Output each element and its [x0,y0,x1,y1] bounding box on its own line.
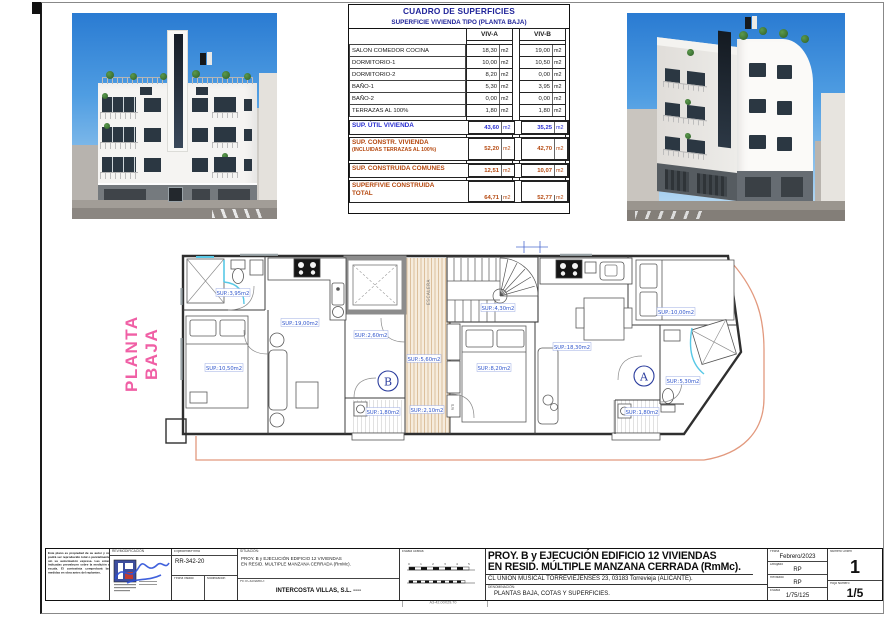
window [192,158,208,172]
room-area-label: SUP.:8,20m2 [478,366,511,372]
numero-orden-value: 1 [828,557,882,578]
room-area-label: SUP.:10,00m2 [658,310,694,316]
room-area-label: SUP.:18,30m2 [554,345,590,351]
unit: m2 [499,69,512,80]
table-subtitle: SUPERFICIE VIVIENDA TIPO (PLANTA BAJA) [349,18,569,28]
kitchen-b [268,258,346,320]
unit-a-letter: A [639,371,649,384]
title-block: Este plano es propiedad de su autor y no… [45,548,883,601]
building-left-face [657,37,737,201]
balcony-rail [100,142,138,149]
window [749,99,766,113]
situacion-label: SITUACIÓN: [240,550,399,553]
escala-row: Escala 1/75/125 [768,588,827,600]
window [144,158,161,172]
unit: m2 [501,195,514,201]
revision-header: REV/MODIFICACIÓN [112,550,172,553]
value-a: 12,51 [469,165,501,176]
storefront [192,189,210,200]
roof-plant [739,31,748,40]
peticionario-value: INTERCOSTA VILLAS, S.L. ---- [238,588,399,594]
expediente-cell: Expediente/Firma RR-342-20 Fecha visado … [172,549,238,600]
paper-format-label: A3-42.00X29.70 [196,601,690,605]
value-b: 10,50 [520,57,552,68]
room-area-label: SUP.:4,30m2 [482,306,515,312]
roof-plant [160,73,167,80]
roof-plant [687,49,694,56]
window-small [244,129,252,141]
value-a: 43,60 [469,122,501,133]
hoja-cell: Hoja Numero 1/5 [828,581,882,600]
escala-label: Escala [770,589,828,592]
window [749,135,766,149]
storefront [781,177,803,197]
room-area-label: SUP.:5,60m2 [408,357,441,363]
project-title-cell: PROY. B y EJECUCIÓN EDIFICIO 12 VIVIENDA… [486,549,768,600]
value-a: 18,30 [467,45,499,56]
unit: m2 [554,139,567,159]
logo-cell: REV/MODIFICACIÓN [110,549,172,600]
disclaimer-fine-print: Este plano es propiedad de su autor y no… [48,552,110,575]
architect-logo [111,557,171,600]
project-address: CL UNION MUSICAL TORREVIEJENSES 23, 0318… [486,575,767,585]
neighbor-wall-right [259,73,277,200]
dibujado-value: RP [768,567,827,573]
tower-glass [174,34,183,148]
svg-text:4: 4 [456,562,458,566]
comunes-summary-row: SUP. CONSTRUIDA COMUNES 12,51m2 10,07m2 [349,163,569,178]
unit: m2 [554,165,567,176]
format-tick [487,601,488,607]
terrace-b-step [352,433,404,440]
svg-text:0: 0 [408,562,410,566]
bathroom-a-fixtures [661,320,736,412]
escala-grafica-label: Escala Gráfica [402,550,486,553]
value-b: 10,07 [522,165,554,176]
balcony-plant [685,133,691,140]
value-b: 42,70 [522,139,554,159]
escala-value: 1/75/125 [768,593,827,599]
elevator [346,258,404,312]
chimney-white [207,52,212,65]
value-a: 8,20 [467,69,499,80]
front-elevation-render [72,13,277,219]
kitchen-a [540,258,632,284]
room-area-label: SUP.:2,60m2 [355,333,388,339]
modificacion-label: Modificación [207,577,238,580]
expediente-number: RR-342-20 [172,556,237,565]
riti-label-vertical: RITI [451,404,455,410]
garage-door [697,173,727,197]
unit: m2 [552,81,565,92]
roof-plant [222,71,230,79]
corner-perspective-render [627,13,845,221]
storefront [745,177,771,197]
value-b: 0,00 [520,93,552,104]
summary-label: SUP. CONSTR. VIVIENDA (INCLUIDAS TERRAZA… [350,138,468,160]
fecha-visado-label: Fecha visado [174,577,206,580]
value-a: 0,00 [467,93,499,104]
window [214,127,236,142]
revisado-value: RP [768,580,827,586]
staircase [447,257,538,322]
neighbor-wall-right2 [815,141,821,201]
balcony-glass [102,127,136,142]
neighbor-wall-right [821,93,845,201]
ground-floor [98,183,257,200]
balcony-glass [102,97,136,112]
window [144,128,161,142]
room-area-label: SUP.:19,00m2 [282,321,318,327]
value-a: 1,80 [467,105,499,116]
unit: m2 [552,45,565,56]
unit: m2 [552,93,565,104]
format-tick [402,601,403,607]
denominacion-label: DENOMINACIÓN: [488,586,766,589]
hoja-value: 1/5 [828,586,882,600]
situacion-text: PROY. B y EJECUCIÓN EDIFICIO 12 VIVIENDA… [241,557,398,568]
roof-plant [759,27,767,35]
window [214,97,236,112]
unit: m2 [499,105,512,116]
expediente-header: Expediente/Firma [174,550,238,553]
denominacion-cell: DENOMINACIÓN: PLANTAS BAJA, COTAS Y SUPE… [486,585,767,600]
hoja-label: Hoja Numero [830,582,882,585]
window [777,65,792,79]
balcony-plant [685,99,691,106]
balcony-rail [100,172,138,179]
unit-b-marker: B [378,371,398,391]
unit-b-letter: B [384,376,392,389]
tower-glass [718,31,731,149]
crosswalk [212,209,267,218]
svg-text:2: 2 [432,562,434,566]
total-summary-row: SUPERFIVIE CONSTRUIDA TOTAL 64,71m2 52,7… [349,180,569,203]
neighbor-wall-left [627,109,659,201]
neighbor-wall-left [72,145,98,200]
drawing-sheet: { "colors": { "pink_accent": "#f05fa5", … [0,0,888,618]
graphic-scale-bar: 012 345 [403,559,483,593]
svg-text:5: 5 [468,562,470,566]
project-title: PROY. B y EJECUCIÓN EDIFICIO 12 VIVIENDA… [486,549,753,575]
unit: m2 [501,165,514,176]
roof-plant [779,29,788,38]
room-area-label: SUP.:1,80m2 [626,410,659,416]
garage-door [665,169,689,192]
stair-label-vertical: ESCALERA [426,279,431,305]
balcony-rail [212,172,238,178]
roof-plant [192,70,200,78]
chimney-dark [745,17,751,29]
building-right-face [737,39,813,201]
window [144,98,161,112]
util-summary-row: SUP. ÚTIL VIVIENDA 43,60m2 35,25m2 [349,120,569,135]
fecha-value: Febrero/2023 [768,554,827,560]
value-a: 5,30 [467,81,499,92]
ground-floor-right [737,171,813,201]
disclaimer-cell: Este plano es propiedad de su autor y no… [46,549,110,600]
value-b: 0,00 [520,69,552,80]
situacion-cell: SITUACIÓN: PROY. B y EJECUCIÓN EDIFICIO … [238,549,400,600]
revisado-row: Revisado RP [768,575,827,588]
value-b: 1,80 [520,105,552,116]
unit: m2 [499,81,512,92]
value-a: 10,00 [467,57,499,68]
expediente-subcells: Fecha visado Modificación [172,575,237,600]
balcony-rail [212,112,238,118]
revisado-label: Revisado [770,576,828,579]
room-area-label: SUP.:5,30m2 [667,379,700,385]
window [749,63,766,77]
value-b: 3,95 [520,81,552,92]
svg-text:1: 1 [420,562,422,566]
unit: m2 [552,57,565,68]
corridor-closets [447,324,460,417]
window [214,157,236,172]
storefront [104,189,146,200]
unit: m2 [554,122,567,133]
unit: m2 [552,105,565,116]
value-a: 52,20 [469,139,501,159]
fecha-row: Fecha Febrero/2023 [768,549,827,562]
balcony-plant [102,93,108,99]
room-area-label: SUP.:1,80m2 [367,410,400,416]
balcony-rail [212,142,238,148]
window-small [244,159,252,171]
svg-text:3: 3 [444,562,446,566]
room-area-label: SUP.:10,50m2 [206,366,242,372]
fecha-label: Fecha [770,550,828,553]
room-area-label: SUP.:3,95m2 [217,291,250,297]
surface-areas-table: CUADRO DE SUPERFICIES SUPERFICIE VIVIEND… [348,4,570,214]
storefront [218,189,250,200]
roof-plant [801,35,809,43]
window [192,98,208,112]
balcony-rail [100,112,138,119]
dimension-marks [516,241,548,253]
stair-tower [167,30,188,152]
chimney-white [752,16,757,29]
order-cell: Numero Orden 1 Hoja Numero 1/5 [828,549,882,600]
chimney-dark [200,53,206,65]
value-b: 35,25 [522,122,554,133]
sheet-corner-mark [32,2,41,14]
unit: m2 [499,45,512,56]
unit: m2 [552,69,565,80]
summary-label: SUPERFIVIE CONSTRUIDA TOTAL [350,181,468,202]
value-b: 52,77 [522,195,554,201]
balcony-plant [104,123,110,129]
denominacion-value: PLANTAS BAJA, COTAS Y SUPERFICIES. [494,591,610,597]
attic-window [140,87,152,95]
peticionario-label: PETICIONARIO: [240,580,399,583]
graphic-scale-cell: Escala Gráfica 012 345 [400,549,486,600]
window-small [244,99,252,111]
numero-orden-cell: Numero Orden 1 [828,549,882,581]
plan-title-vertical: PLANTA BAJA [122,288,152,420]
summary-label: SUP. CONSTRUIDA COMUNES [350,164,468,177]
dibujado-row: Dibujado RP [768,562,827,575]
balcony-glass [102,157,136,172]
unit: m2 [554,195,567,201]
unit-a-marker: A [634,366,654,386]
summary-label: SUP. ÚTIL VIVIENDA [350,121,468,134]
table-title: CUADRO DE SUPERFICIES [349,5,569,18]
dates-cell: Fecha Febrero/2023 Dibujado RP Revisado … [768,549,828,600]
window [777,137,792,151]
attic-window [196,87,208,95]
floor-plan: SUP.:3,95m2 SUP.:19,00m2 SUP.:10,50m2 SU… [160,240,780,550]
window [777,101,792,115]
roof-plant [106,71,114,79]
roof-plant [130,73,137,80]
bathroom-b-fixtures [187,259,263,304]
unit: m2 [499,93,512,104]
unit: m2 [501,122,514,133]
numero-orden-label: Numero Orden [830,550,882,553]
room-area-label: SUP.:2,10m2 [411,408,444,414]
unit: m2 [499,57,512,68]
road-marking [635,211,705,219]
table-title-box: CUADRO DE SUPERFICIES SUPERFICIE VIVIEND… [349,5,569,29]
terrace-a-step [612,433,660,440]
window [192,128,208,142]
roof-plant [244,73,251,80]
value-b: 19,00 [520,45,552,56]
value-a: 64,71 [469,195,501,201]
unit: m2 [501,139,514,159]
entrance-door [168,187,183,202]
dibujado-label: Dibujado [770,563,828,566]
constr-summary-row: SUP. CONSTR. VIVIENDA (INCLUIDAS TERRAZA… [349,137,569,161]
